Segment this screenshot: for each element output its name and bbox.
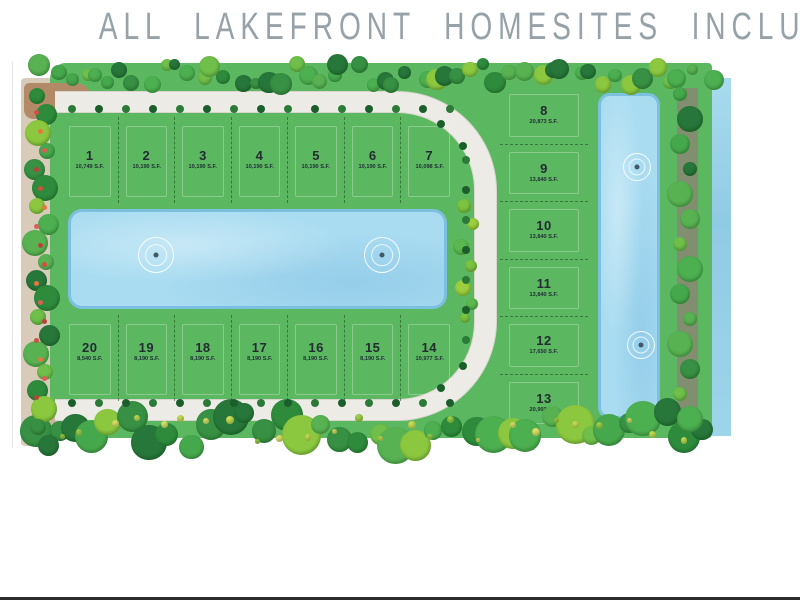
lot-7: 710,098 S.F. [401,117,457,203]
tree-icon [101,76,113,88]
lot-area-label: 8,190 S.F. [190,356,215,362]
street-tree-icon [68,399,76,407]
site-plan-page: ALL LAKEFRONT HOMESITES INCLUDED 110,749… [0,0,800,600]
flower-icon [42,376,47,381]
street-tree-icon [462,216,470,224]
shrub-icon [226,416,233,423]
lot-10: 1013,840 S.F. [500,202,588,260]
flower-icon [38,243,43,248]
flower-icon [42,205,47,210]
lot-area-label: 10,190 S.F. [245,164,273,170]
tree-icon [235,75,252,92]
building-pad-outline [126,126,168,197]
street-tree-icon [311,399,319,407]
tree-icon [667,331,693,357]
lot-area-label: 10,098 S.F. [415,164,443,170]
tree-icon [32,175,58,201]
street-tree-icon [230,399,238,407]
street-tree-icon [392,105,400,113]
shrub-icon [627,418,632,423]
lot-area-label: 8,540 S.F. [77,356,102,362]
building-pad-outline [295,126,337,197]
lot-17: 178,190 S.F. [232,315,289,401]
building-pad-outline [509,324,579,367]
building-pad-outline [69,126,111,197]
tree-icon [28,54,50,76]
tree-icon [477,58,489,70]
lot-5: 510,190 S.F. [288,117,345,203]
shrub-icon [276,435,283,442]
street-tree-icon [419,105,427,113]
street-tree-icon [338,399,346,407]
street-tree-icon [437,120,445,128]
east-lake [598,93,660,419]
street-tree-icon [230,105,238,113]
street-tree-icon [149,105,157,113]
tree-icon [144,76,161,93]
street-tree-icon [462,306,470,314]
street-tree-icon [338,105,346,113]
flower-icon [34,167,39,172]
perimeter-canal [712,78,731,436]
shrub-icon [532,428,540,436]
tree-icon [312,74,327,89]
lot-11: 1113,840 S.F. [500,260,588,318]
street-tree-icon [284,399,292,407]
lot-16: 168,190 S.F. [288,315,345,401]
building-pad-outline [352,126,394,197]
tree-icon [680,209,700,229]
lot-area-label: 13,840 S.F. [530,234,558,240]
tree-icon [667,69,686,88]
street-tree-icon [176,399,184,407]
tree-icon [179,65,195,81]
tree-icon [23,341,49,367]
tree-icon [234,403,254,423]
shrub-icon [76,429,83,436]
lot-19: 198,190 S.F. [119,315,176,401]
tree-icon [649,58,667,76]
lot-15: 158,190 S.F. [345,315,402,401]
street-tree-icon [437,384,445,392]
street-tree-icon [68,105,76,113]
flower-icon [38,300,43,305]
tree-icon [270,73,292,95]
lot-area-label: 10,190 S.F. [132,164,160,170]
tree-icon [31,396,57,422]
lot-area-label: 8,190 S.F. [247,356,272,362]
tree-icon [608,69,622,83]
building-pad-outline [509,267,579,310]
fountain-icon [364,237,400,273]
street-tree-icon [365,105,373,113]
street-tree-icon [446,399,454,407]
street-tree-icon [446,105,454,113]
street-tree-icon [203,105,211,113]
flower-icon [34,110,39,115]
tree-icon [673,237,687,251]
flower-icon [34,338,39,343]
street-tree-icon [176,105,184,113]
sheet-edge-line [12,62,13,448]
tree-icon [680,359,700,379]
lot-area-label: 10,749 S.F. [76,164,104,170]
building-pad-outline [408,126,450,197]
lot-9: 913,840 S.F. [500,145,588,203]
shrub-icon [427,434,432,439]
tree-icon [687,64,698,75]
tree-icon [22,230,48,256]
lot-20: 208,540 S.F. [62,315,119,401]
lot-14: 1410,977 S.F. [401,315,457,401]
street-tree-icon [462,276,470,284]
shrub-icon [255,439,260,444]
shrub-icon [465,260,477,272]
tree-icon [677,406,703,432]
flower-icon [42,262,47,267]
shrub-icon [510,422,516,428]
street-tree-icon [419,399,427,407]
street-tree-icon [203,399,211,407]
tree-icon [670,134,690,154]
tree-icon [670,284,690,304]
tree-icon [673,87,687,101]
lot-area-label: 10,190 S.F. [302,164,330,170]
building-pad-outline [509,209,579,252]
tree-icon [667,181,693,207]
shrub-icon [681,437,687,443]
shrub-icon [305,434,312,441]
tree-icon [179,435,204,460]
flower-icon [42,148,47,153]
building-pad-outline [239,126,281,197]
street-tree-icon [365,399,373,407]
street-tree-icon [462,336,470,344]
page-title: ALL LAKEFRONT HOMESITES INCLUDED [99,6,661,49]
tree-icon [683,312,697,326]
lot-area-label: 13,840 S.F. [530,177,558,183]
tree-icon [347,432,369,454]
tree-icon [677,106,703,132]
street-tree-icon [462,156,470,164]
tree-icon [673,387,687,401]
lot-8: 820,873 S.F. [500,87,588,145]
street-tree-icon [459,142,467,150]
street-tree-icon [284,105,292,113]
north-lot-row: 110,749 S.F.210,190 S.F.310,190 S.F.410,… [62,117,457,203]
fountain-icon [623,153,651,181]
flower-icon [34,224,39,229]
lot-2: 210,190 S.F. [119,117,176,203]
lot-area-label: 8,190 S.F. [134,356,159,362]
tree-icon [398,66,411,79]
lot-area-label: 17,650 S.F. [530,349,558,355]
tree-icon [38,435,59,456]
lot-3: 310,190 S.F. [175,117,232,203]
shrub-icon [134,415,140,421]
shrub-icon [457,199,471,213]
tree-icon [683,162,697,176]
lot-area-label: 10,190 S.F. [359,164,387,170]
tree-icon [351,56,368,73]
building-pad-outline [509,94,579,137]
tree-icon [580,64,596,80]
street-tree-icon [459,362,467,370]
shrub-icon [355,414,363,422]
tree-icon [88,68,102,82]
street-tree-icon [462,186,470,194]
flower-icon [42,319,47,324]
lot-4: 410,190 S.F. [232,117,289,203]
shrub-icon [408,421,416,429]
street-tree-icon [122,399,130,407]
lot-12: 1217,650 S.F. [500,317,588,375]
south-lot-row: 208,540 S.F.198,190 S.F.188,190 S.F.178,… [62,315,457,401]
flower-icon [38,186,43,191]
flower-icon [38,357,43,362]
lot-area-label: 13,840 S.F. [530,292,558,298]
central-lake [68,209,447,309]
shrub-icon [112,420,119,427]
street-tree-icon [149,399,157,407]
lot-area-label: 20,873 S.F. [530,119,558,125]
flower-icon [34,281,39,286]
lot-area-label: 8,190 S.F. [303,356,328,362]
street-tree-icon [95,105,103,113]
lot-area-label: 10,977 S.F. [415,356,443,362]
building-pad-outline [509,152,579,195]
east-lot-column: 820,873 S.F.913,840 S.F.1013,840 S.F.111… [500,87,588,431]
building-pad-outline [182,126,224,197]
lot-1: 110,749 S.F. [62,117,119,203]
lot-18: 188,190 S.F. [175,315,232,401]
street-tree-icon [257,399,265,407]
tree-icon [66,73,79,86]
flower-icon [38,129,43,134]
street-tree-icon [462,246,470,254]
shrub-icon [460,313,470,323]
tree-icon [677,256,703,282]
shrub-icon [203,418,209,424]
lot-6: 610,190 S.F. [345,117,402,203]
lot-area-label: 10,190 S.F. [189,164,217,170]
street-tree-icon [122,105,130,113]
fountain-icon [627,331,655,359]
street-tree-icon [95,399,103,407]
street-tree-icon [257,105,265,113]
tree-icon [462,62,477,77]
fountain-icon [138,237,174,273]
lot-area-label: 8,190 S.F. [360,356,385,362]
street-tree-icon [392,399,400,407]
street-tree-icon [311,105,319,113]
flower-icon [34,395,39,400]
